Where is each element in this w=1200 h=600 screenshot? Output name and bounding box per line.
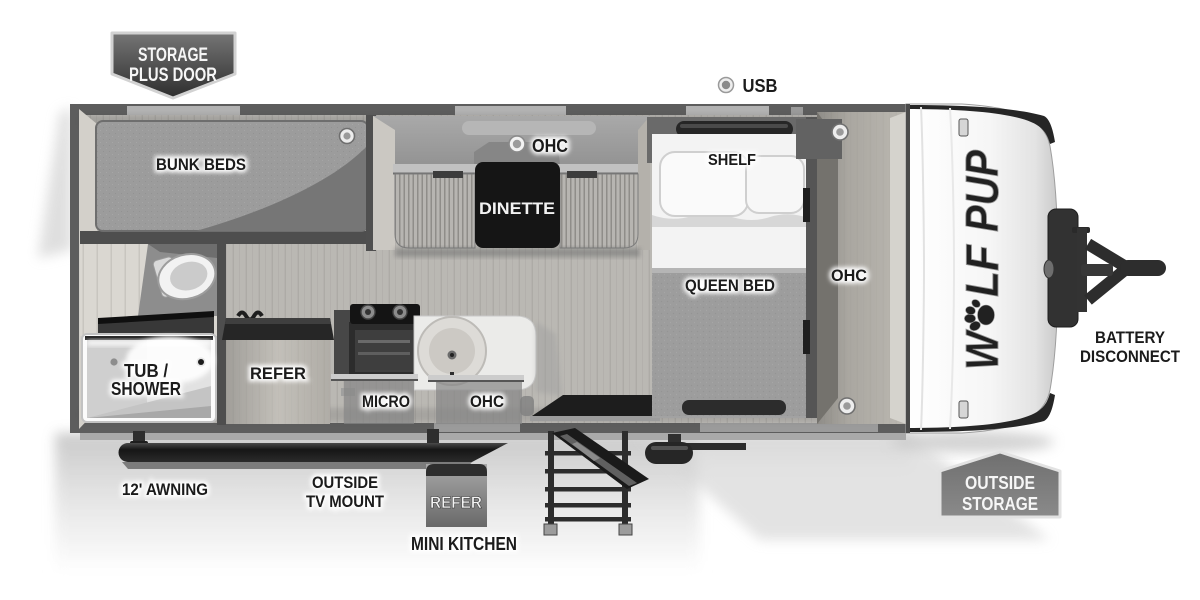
svg-text:TV MOUNT: TV MOUNT	[306, 492, 385, 511]
svg-text:W: W	[956, 329, 1008, 370]
svg-text:DINETTE: DINETTE	[479, 199, 555, 218]
svg-text:REFER: REFER	[430, 493, 482, 512]
svg-text:OHC: OHC	[470, 392, 504, 411]
svg-text:PUP: PUP	[956, 150, 1008, 232]
svg-text:STORAGE: STORAGE	[138, 45, 208, 66]
svg-text:OUTSIDE: OUTSIDE	[965, 473, 1035, 493]
svg-text:BATTERY: BATTERY	[1095, 328, 1166, 347]
svg-text:OUTSIDE: OUTSIDE	[312, 473, 378, 492]
svg-text:TUB /: TUB /	[124, 361, 168, 381]
svg-text:USB: USB	[743, 76, 778, 96]
svg-text:BUNK BEDS: BUNK BEDS	[156, 155, 246, 174]
svg-text:OHC: OHC	[831, 266, 867, 285]
svg-text:12' AWNING: 12' AWNING	[122, 480, 208, 499]
svg-text:REFER: REFER	[250, 364, 306, 383]
svg-text:MICRO: MICRO	[362, 392, 410, 411]
svg-text:MINI KITCHEN: MINI KITCHEN	[411, 534, 517, 554]
svg-text:LF: LF	[956, 243, 1008, 297]
svg-text:SHOWER: SHOWER	[111, 379, 181, 399]
svg-text:OHC: OHC	[532, 136, 568, 156]
svg-text:QUEEN BED: QUEEN BED	[685, 276, 775, 295]
svg-text:PLUS DOOR: PLUS DOOR	[129, 65, 217, 86]
svg-text:STORAGE: STORAGE	[962, 494, 1038, 514]
svg-text:DISCONNECT: DISCONNECT	[1080, 347, 1181, 366]
svg-text:SHELF: SHELF	[708, 152, 756, 169]
